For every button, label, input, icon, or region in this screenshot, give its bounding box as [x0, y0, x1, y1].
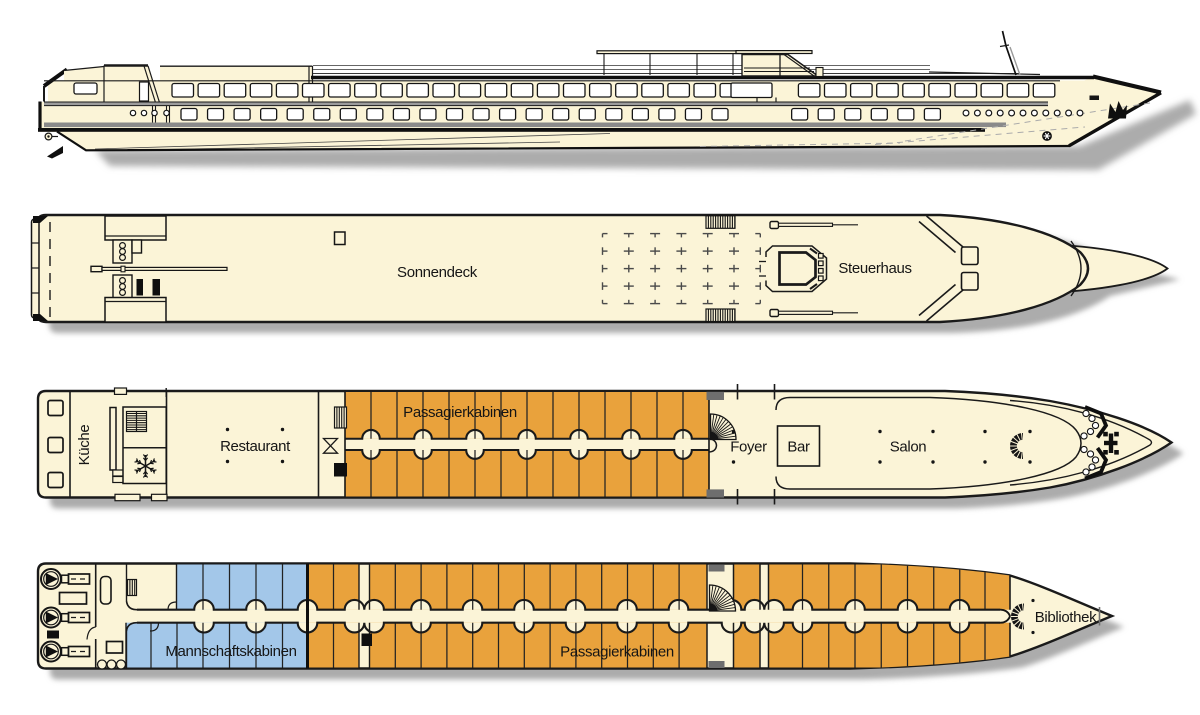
- svg-text:Foyer: Foyer: [730, 439, 767, 456]
- svg-text:Salon: Salon: [890, 439, 927, 456]
- svg-text:Bar: Bar: [787, 439, 810, 456]
- svg-text:Küche: Küche: [76, 425, 93, 466]
- svg-text:Steuerhaus: Steuerhaus: [838, 260, 911, 277]
- svg-text:Restaurant: Restaurant: [220, 438, 291, 455]
- svg-text:Bibliothek: Bibliothek: [1035, 609, 1097, 626]
- svg-text:Passagierkabinen: Passagierkabinen: [560, 644, 674, 661]
- svg-text:Passagierkabinen: Passagierkabinen: [403, 404, 517, 421]
- svg-text:Mannschaftskabinen: Mannschaftskabinen: [165, 643, 296, 660]
- svg-text:Sonnendeck: Sonnendeck: [397, 264, 478, 281]
